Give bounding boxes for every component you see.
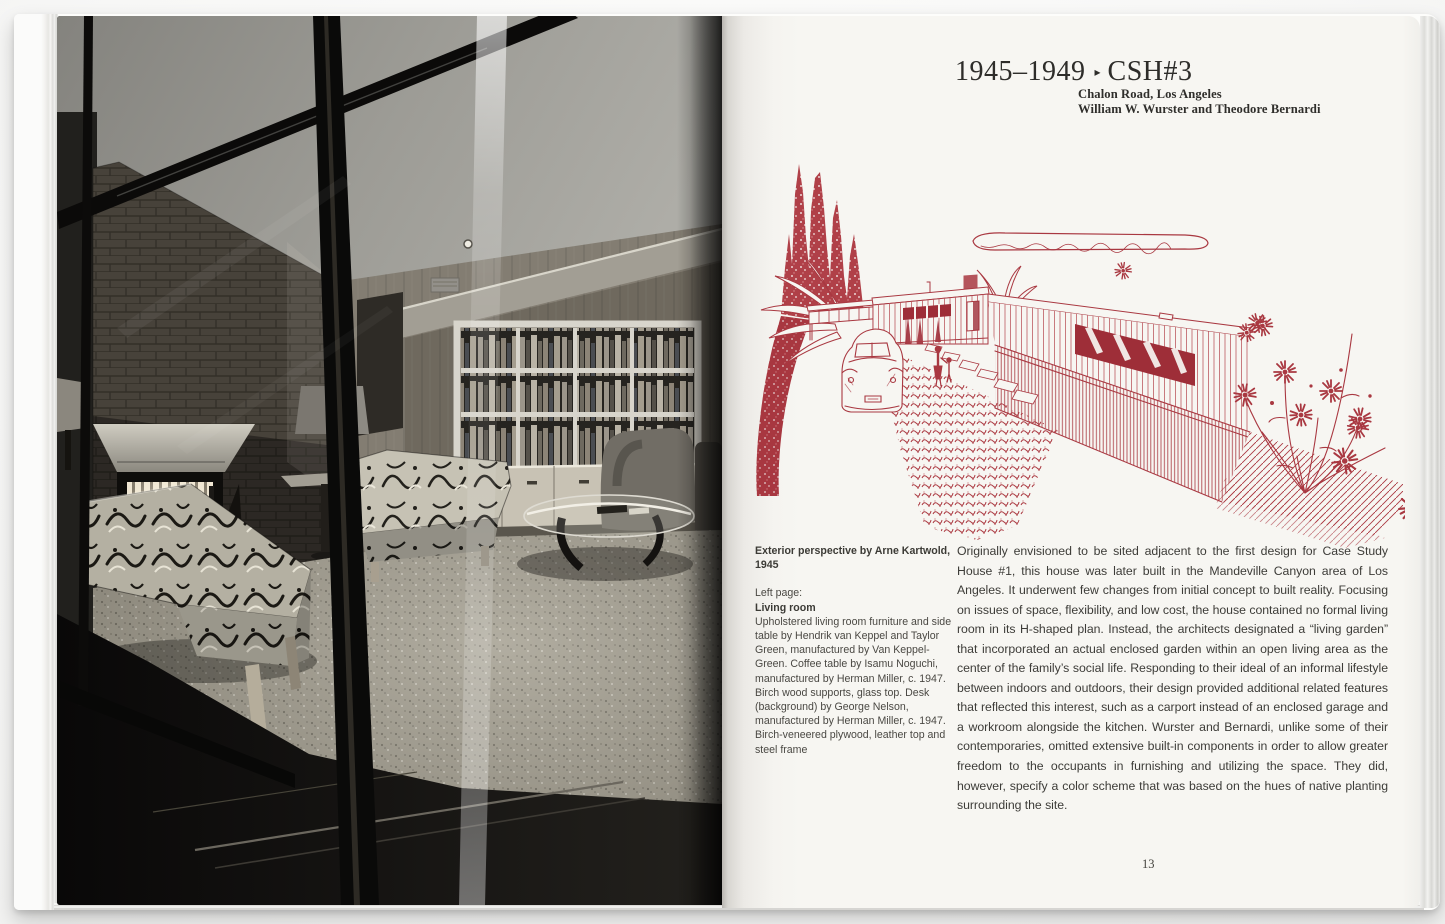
- title-separator-triangle-icon: ▸: [1095, 65, 1101, 79]
- body-text: Originally envisioned to be sited adjace…: [957, 542, 1388, 816]
- title-house-code: CSH#3: [1108, 56, 1193, 87]
- exterior-perspective-illustration: [745, 148, 1405, 548]
- subtitle-address: Chalon Road, Los Angeles: [1078, 87, 1321, 102]
- caption-description: Upholstered living room furniture and si…: [755, 615, 954, 757]
- open-book-spread: 1945–1949▸CSH#3 Chalon Road, Los Angeles…: [14, 14, 1440, 910]
- caption-subject: Living room: [755, 601, 954, 615]
- subtitle-architects: William W. Wurster and Theodore Bernardi: [1078, 102, 1321, 117]
- chapter-title: 1945–1949▸CSH#3: [955, 56, 1193, 88]
- illustration-credit: Exterior perspective by Arne Kartwold, 1…: [755, 544, 954, 572]
- title-subtitle: Chalon Road, Los Angeles William W. Wurs…: [1078, 87, 1321, 117]
- right-page: 1945–1949▸CSH#3 Chalon Road, Los Angeles…: [722, 16, 1420, 908]
- photo-caption-column: Exterior perspective by Arne Kartwold, 1…: [755, 544, 954, 757]
- living-room-photo: [57, 16, 722, 905]
- left-page-stack-edge: [14, 14, 58, 910]
- title-years: 1945–1949: [955, 56, 1086, 87]
- right-page-stack-edge: [1420, 16, 1440, 908]
- page-number: 13: [1142, 857, 1155, 872]
- caption-page-ref: Left page:: [755, 586, 954, 600]
- left-page-photograph: [57, 16, 722, 905]
